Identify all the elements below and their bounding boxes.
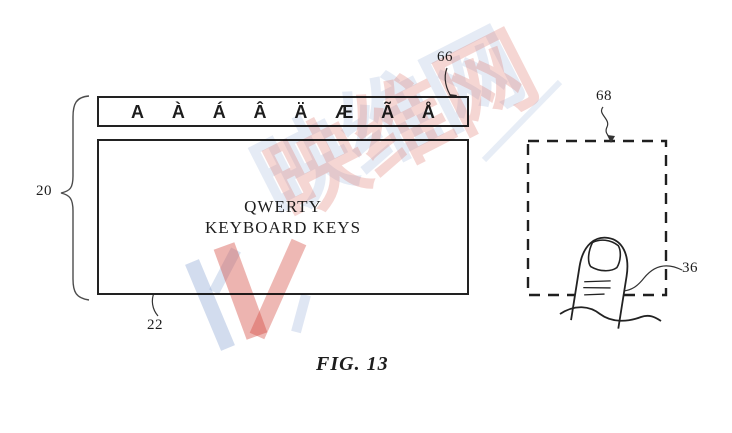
fingernail: [587, 238, 623, 273]
keyboard-label-line2: KEYBOARD KEYS: [205, 217, 361, 238]
finger-creases: [582, 277, 611, 299]
ref-label-22: 22: [147, 318, 163, 333]
qwerty-keyboard-box: QWERTY KEYBOARD KEYS: [97, 139, 469, 295]
leader-line-22: [152, 293, 158, 316]
ref-label-66: 66: [437, 50, 453, 65]
ref-label-36: 36: [682, 261, 698, 276]
finger-illustration: [571, 234, 632, 328]
finger-outline: [571, 234, 632, 328]
leader-line-68: [601, 107, 611, 139]
arrowhead-68: [607, 135, 615, 143]
accent-key: A: [131, 103, 144, 121]
touch-area-dashed-box: [528, 141, 666, 295]
hand-edge-line: [560, 307, 661, 321]
patent-figure-page: A À Á Â Ä Æ Ã Å QWERTY KEYBOARD KEYS 66 …: [0, 0, 732, 433]
brace-20: [61, 96, 89, 300]
watermark-fleck: [484, 82, 560, 160]
accent-key: À: [172, 103, 185, 121]
keyboard-label-line1: QWERTY: [244, 196, 322, 217]
accent-key: Æ: [335, 103, 353, 121]
accent-key: Á: [213, 103, 226, 121]
leader-line-36: [624, 266, 682, 291]
figure-caption: FIG. 13: [316, 353, 436, 376]
ref-label-68: 68: [596, 89, 612, 104]
leader-line-66: [445, 68, 452, 98]
yv-logo-blue-stroke: [296, 295, 306, 332]
accent-key: Â: [254, 103, 267, 121]
accent-key: Å: [422, 103, 435, 121]
ref-label-20: 20: [36, 184, 52, 199]
accent-key: Ä: [294, 103, 307, 121]
accent-key-row: A À Á Â Ä Æ Ã Å: [97, 96, 469, 127]
accent-key: Ã: [381, 103, 394, 121]
